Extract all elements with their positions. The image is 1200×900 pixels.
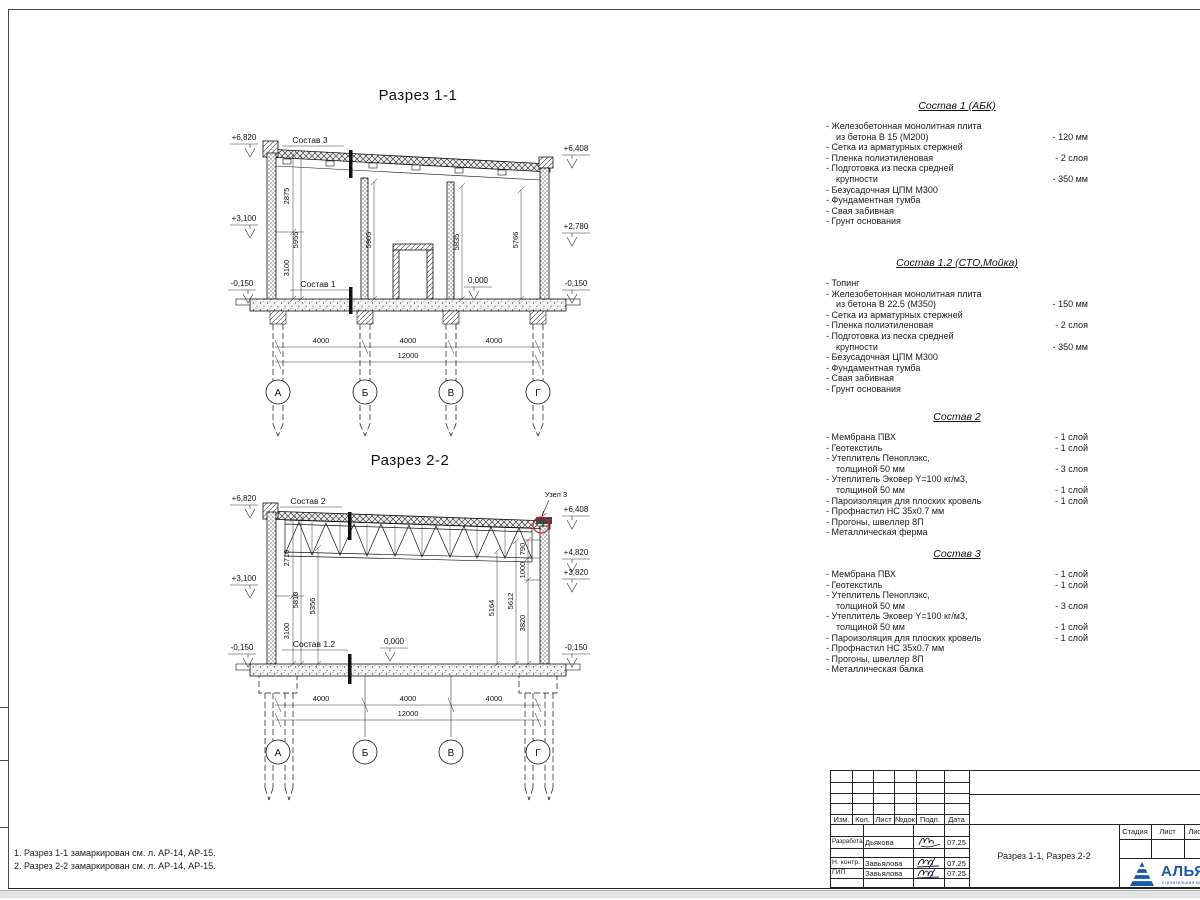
spec-item-value: - 120 мм <box>1047 132 1088 143</box>
spec-item-text: - Сетка из арматурных стержней <box>826 310 963 321</box>
svg-text:0,000: 0,000 <box>468 276 489 285</box>
spec-item-text: - Утеплитель Пеноплэкс, <box>826 453 930 464</box>
spec-item-text: - Пленка полиэтиленовая <box>826 320 933 331</box>
svg-text:+6,820: +6,820 <box>232 133 257 142</box>
spec-block-sostav-3: Состав 3 - Мембрана ПВХ - 1 слой - Геоте… <box>826 548 1088 675</box>
wall-left <box>267 512 276 664</box>
spec-item-value: - 1 слой <box>1049 622 1088 633</box>
spec-item-text: - Утеплитель Эковер Y=100 кг/м3, <box>826 474 967 485</box>
spec-item-text: из бетона В 22.5 (М350) <box>826 299 936 310</box>
tb-stage-col: Стадия <box>1119 827 1151 836</box>
roof-slab <box>266 511 550 529</box>
spec-item-value: - 350 мм <box>1047 342 1088 353</box>
spec-row: - Пленка полиэтиленовая - 2 слоя <box>826 320 1088 331</box>
spec-item-text: - Подготовка из песка средней <box>826 163 954 174</box>
pile-cap <box>270 311 546 324</box>
company-name: АЛЬЯНС <box>1161 863 1200 880</box>
spec-item-value <box>1082 185 1088 196</box>
dimension-label: 3100 <box>282 623 291 640</box>
spec-row: из бетона В 22.5 (М350) - 150 мм <box>826 299 1088 310</box>
spec-row: крупности - 350 мм <box>826 174 1088 185</box>
tb-sheets-col: Листов <box>1184 827 1200 836</box>
spec-item-text: толщиной 50 мм <box>826 485 905 496</box>
spec-row: - Пароизоляция для плоских кровель - 1 с… <box>826 633 1088 644</box>
tb-col-list: Лист <box>873 815 894 824</box>
spec-item-value <box>1082 664 1088 675</box>
spec-item-value <box>1082 195 1088 206</box>
spec-item-text: - Геотекстиль <box>826 580 882 591</box>
spec-row: - Сетка из арматурных стержней <box>826 142 1088 153</box>
spec-item-value <box>1082 453 1088 464</box>
spec-block-sostav-1-2: Состав 1.2 (СТО,Мойка) - Топинг - Железо… <box>826 257 1088 395</box>
spec-item-value: - 1 слой <box>1049 443 1088 454</box>
spec-item-value <box>1082 363 1088 374</box>
elevation-mark: +3,820 <box>562 568 590 592</box>
spec-item-text: - Прогоны, швеллер 8П <box>826 654 924 665</box>
cut-mark <box>348 512 352 540</box>
dimension-label: 12000 <box>398 351 419 360</box>
spec-row: - Свая забивная <box>826 206 1088 217</box>
spec-item-text: - Металлическая ферма <box>826 527 928 538</box>
spec-block-sostav-2: Состав 2 - Мембрана ПВХ - 1 слой - Геоте… <box>826 411 1088 538</box>
title-block: Изм. Кол. Лист №док Подп. Дата Разработа… <box>830 770 1200 888</box>
svg-text:+3,100: +3,100 <box>232 574 257 583</box>
spec-item-value <box>1082 206 1088 217</box>
spec-item-value <box>1082 517 1088 528</box>
spec-item-text: - Пленка полиэтиленовая <box>826 153 933 164</box>
spec-item-text: - Топинг <box>826 278 859 289</box>
spec-row: - Металлическая балка <box>826 664 1088 675</box>
sheet-frame-bottom <box>8 888 1200 889</box>
spec-row: крупности - 350 мм <box>826 342 1088 353</box>
spec-row: - Утеплитель Эковер Y=100 кг/м3, <box>826 474 1088 485</box>
tb-col-kol: Кол. <box>852 815 873 824</box>
spec-item-text: - Фундаментная тумба <box>826 195 920 206</box>
spec-item-text: - Геотекстиль <box>826 443 882 454</box>
spec-row: из бетона В 15 (М200) - 120 мм <box>826 132 1088 143</box>
sections-drawing: 2875 5955 3100 5905 5835 5766 4000 4000 … <box>0 80 660 840</box>
dimension-label: 3820 <box>518 615 527 632</box>
spec-row: - Топинг <box>826 278 1088 289</box>
spec-item-text: - Сетка из арматурных стержней <box>826 142 963 153</box>
spec-item-value <box>1082 384 1088 395</box>
spec-item-value: - 1 слой <box>1049 432 1088 443</box>
spec-row: толщиной 50 мм - 3 слоя <box>826 464 1088 475</box>
svg-text:+2,780: +2,780 <box>564 222 589 231</box>
wall-left <box>267 153 276 299</box>
cut-mark <box>349 287 353 314</box>
spec-item-value <box>1082 654 1088 665</box>
spec-item-text: - Свая забивная <box>826 373 894 384</box>
door-frame <box>393 244 433 299</box>
spec-row: - Безусадочная ЦПМ М300 <box>826 352 1088 363</box>
axis-bubble: Б <box>362 748 369 759</box>
cut-mark <box>349 150 353 178</box>
section1-dim-labels: 2875 5955 3100 5905 5835 5766 4000 4000 … <box>282 188 520 360</box>
spec-row: - Железобетонная монолитная плита <box>826 121 1088 132</box>
spec-item-value <box>1082 121 1088 132</box>
spec-row: - Грунт основания <box>826 384 1088 395</box>
spec-row: - Утеплитель Пеноплэкс, <box>826 453 1088 464</box>
spec-item-value: - 150 мм <box>1047 299 1088 310</box>
elevation-mark: +6,408 <box>562 505 590 529</box>
spec-row: - Профнастил НС 35х0.7 мм <box>826 643 1088 654</box>
spec-item-value: - 3 слоя <box>1049 464 1088 475</box>
spec-item-text: - Мембрана ПВХ <box>826 432 896 443</box>
spec-title: Состав 3 <box>826 548 1088 560</box>
spec-row: - Утеплитель Эковер Y=100 кг/м3, <box>826 611 1088 622</box>
dimension-label: 1000 <box>518 562 527 579</box>
spec-item-value <box>1082 331 1088 342</box>
spec-row: - Профнастил НС 35х0.7 мм <box>826 506 1088 517</box>
spec-item-text: - Безусадочная ЦПМ М300 <box>826 352 938 363</box>
sheet-edge-shadow <box>0 890 1200 898</box>
wall-right <box>540 168 549 299</box>
spec-row: - Безусадочная ЦПМ М300 <box>826 185 1088 196</box>
section2-dim-labels: 2710 5810 5356 3100 5164 5612 3820 1000 … <box>282 543 527 718</box>
spec-item-value <box>1082 527 1088 538</box>
dimension-label: 5955 <box>291 232 300 249</box>
spec-item-text: - Пароизоляция для плоских кровель <box>826 496 981 507</box>
elevation-mark: +6,820 <box>230 133 258 157</box>
wall-right <box>540 526 549 664</box>
spec-item-value: - 2 слоя <box>1049 153 1088 164</box>
spec-row: - Подготовка из песка средней <box>826 163 1088 174</box>
spec-item-text: - Грунт основания <box>826 384 901 395</box>
tb-date: 07.25 <box>944 869 969 878</box>
spec-rows: - Топинг - Железобетонная монолитная пли… <box>826 278 1088 395</box>
floor-ledge <box>566 299 580 305</box>
elevation-mark: -0,150 <box>562 643 590 667</box>
spec-item-text: - Железобетонная монолитная плита <box>826 289 982 300</box>
dimension-label: 4000 <box>313 336 330 345</box>
spec-row: - Мембрана ПВХ - 1 слой <box>826 432 1088 443</box>
svg-text:+6,820: +6,820 <box>232 494 257 503</box>
svg-text:+6,408: +6,408 <box>564 144 589 153</box>
elevation-mark: +3,100 <box>230 214 258 238</box>
cut-mark <box>348 654 352 684</box>
spec-row: - Прогоны, швеллер 8П <box>826 517 1088 528</box>
composition-label: Состав 2 <box>290 496 326 506</box>
spec-row: - Пленка полиэтиленовая - 2 слоя <box>826 153 1088 164</box>
dimension-label: 4000 <box>400 694 417 703</box>
spec-rows: - Железобетонная монолитная плита из бет… <box>826 121 1088 227</box>
spec-item-value: - 1 слой <box>1049 569 1088 580</box>
spec-row: - Подготовка из песка средней <box>826 331 1088 342</box>
spec-row: - Утеплитель Пеноплэкс, <box>826 590 1088 601</box>
dimension-label: 5164 <box>487 600 496 617</box>
tb-doc-title: Разрез 1-1, Разрез 2-2 <box>971 851 1117 861</box>
tb-name: Дьякова <box>865 838 912 847</box>
dimension-label: 2875 <box>282 188 291 205</box>
spec-item-value <box>1082 373 1088 384</box>
spec-item-value <box>1082 474 1088 485</box>
tb-col-izm: Изм. <box>831 815 852 824</box>
spec-rows: - Мембрана ПВХ - 1 слой - Геотекстиль - … <box>826 432 1088 538</box>
dimension-label: 5766 <box>511 232 520 249</box>
spec-row: толщиной 50 мм - 1 слой <box>826 622 1088 633</box>
spec-item-text: - Утеплитель Пеноплэкс, <box>826 590 930 601</box>
svg-text:-0,150: -0,150 <box>565 279 588 288</box>
elevation-mark: +6,408 <box>562 144 590 168</box>
floor-ledge <box>236 299 250 305</box>
spec-item-text: - Подготовка из песка средней <box>826 331 954 342</box>
signature-icon <box>915 867 943 880</box>
spec-item-value <box>1082 352 1088 363</box>
elevation-mark: -0,150 <box>228 643 256 667</box>
section1-axes: А Б В Г <box>266 380 550 404</box>
spec-item-text: - Пароизоляция для плоских кровель <box>826 633 981 644</box>
spec-item-text: - Грунт основания <box>826 216 901 227</box>
axis-bubble: Г <box>535 748 541 759</box>
svg-text:+4,820: +4,820 <box>564 548 589 557</box>
signature-icon <box>915 833 943 848</box>
tb-sheet-col: Лист <box>1151 827 1184 836</box>
spec-item-text: крупности <box>826 342 878 353</box>
spec-row: - Металлическая ферма <box>826 527 1088 538</box>
dimension-label: 3100 <box>282 260 291 277</box>
note-line: 1. Разрез 1-1 замаркирован см. л. АР-14,… <box>14 847 216 860</box>
spec-item-text: - Мембрана ПВХ <box>826 569 896 580</box>
spec-item-value <box>1082 278 1088 289</box>
svg-text:+6,408: +6,408 <box>564 505 589 514</box>
spec-item-text: толщиной 50 мм <box>826 622 905 633</box>
spec-row: - Геотекстиль - 1 слой <box>826 443 1088 454</box>
dimension-label: 4000 <box>313 694 330 703</box>
spec-item-value <box>1082 643 1088 654</box>
spec-item-value <box>1082 310 1088 321</box>
dimension-label: 2710 <box>282 550 291 567</box>
elevation-mark: +6,820 <box>230 494 258 518</box>
spec-item-text: толщиной 50 мм <box>826 464 905 475</box>
spec-title: Состав 1.2 (СТО,Мойка) <box>826 257 1088 269</box>
dimension-label: 5612 <box>506 593 515 610</box>
spec-row: - Сетка из арматурных стержней <box>826 310 1088 321</box>
tb-date: 07.25 <box>944 838 969 847</box>
axis-bubble: А <box>275 388 282 399</box>
spec-item-value <box>1082 163 1088 174</box>
spec-item-text: - Свая забивная <box>826 206 894 217</box>
note-line: 2. Разрез 2-2 замаркирован см. л. АР-14,… <box>14 860 216 873</box>
spec-item-text: - Утеплитель Эковер Y=100 кг/м3, <box>826 611 967 622</box>
spec-item-value: - 1 слой <box>1049 633 1088 644</box>
tb-col-data: Дата <box>944 815 969 824</box>
roof-slab <box>266 149 550 172</box>
axis-extension <box>365 676 451 737</box>
svg-text:-0,150: -0,150 <box>231 279 254 288</box>
composition-label: Состав 1 <box>300 279 336 289</box>
spec-item-value: - 1 слой <box>1049 580 1088 591</box>
spec-item-text: - Фундаментная тумба <box>826 363 920 374</box>
roof-edge <box>539 157 553 168</box>
dimension-label: 5356 <box>308 598 317 615</box>
spec-item-value <box>1082 216 1088 227</box>
dimension-label: 4000 <box>486 336 503 345</box>
elevation-mark: 0,000 <box>380 637 408 661</box>
elevation-mark: 0,000 <box>464 276 492 300</box>
spec-rows: - Мембрана ПВХ - 1 слой - Геотекстиль - … <box>826 569 1088 675</box>
spec-item-text: - Металлическая балка <box>826 664 923 675</box>
tb-col-podp: Подп. <box>916 815 944 824</box>
floor-slab <box>250 299 566 311</box>
svg-text:-0,150: -0,150 <box>565 643 588 652</box>
spec-item-value: - 3 слоя <box>1049 601 1088 612</box>
dimension-label: 5810 <box>291 592 300 609</box>
composition-label: Состав 1.2 <box>293 639 336 649</box>
company-subtitle: строительная компания <box>1162 880 1200 885</box>
spec-item-text: - Профнастил НС 35х0.7 мм <box>826 643 944 654</box>
spec-title: Состав 2 <box>826 411 1088 423</box>
spec-item-text: крупности <box>826 174 878 185</box>
spec-row: - Железобетонная монолитная плита <box>826 289 1088 300</box>
floor-slab <box>250 664 566 676</box>
spec-title: Состав 1 (АБК) <box>826 100 1088 112</box>
spec-item-value <box>1082 590 1088 601</box>
tb-name: Завьялова <box>865 869 912 878</box>
dimension-label: 5905 <box>364 232 373 249</box>
spec-item-value <box>1082 611 1088 622</box>
spec-row: - Геотекстиль - 1 слой <box>826 580 1088 591</box>
spec-row: толщиной 50 мм - 1 слой <box>826 485 1088 496</box>
tb-role: Н. контр. <box>832 859 863 866</box>
spec-item-value <box>1082 142 1088 153</box>
tb-date: 07.25 <box>944 859 969 868</box>
dimension-label: 5835 <box>452 234 461 251</box>
spec-item-value: - 1 слой <box>1049 496 1088 507</box>
svg-text:0,000: 0,000 <box>384 637 405 646</box>
spec-row: - Пароизоляция для плоских кровель - 1 с… <box>826 496 1088 507</box>
detail-label: Узел 3 <box>545 490 567 499</box>
spec-row: - Фундаментная тумба <box>826 363 1088 374</box>
spec-item-text: - Железобетонная монолитная плита <box>826 121 982 132</box>
spec-item-value: - 2 слоя <box>1049 320 1088 331</box>
spec-item-text: - Прогоны, швеллер 8П <box>826 517 924 528</box>
elevation-mark: +3,100 <box>230 574 258 598</box>
svg-text:+3,100: +3,100 <box>232 214 257 223</box>
spec-row: - Свая забивная <box>826 373 1088 384</box>
spec-item-value <box>1082 506 1088 517</box>
dimension-label: 4000 <box>400 336 417 345</box>
axis-bubble: Б <box>362 388 369 399</box>
company-logo-icon <box>1129 861 1155 887</box>
spec-row: - Грунт основания <box>826 216 1088 227</box>
spec-row: - Мембрана ПВХ - 1 слой <box>826 569 1088 580</box>
spec-item-value <box>1082 289 1088 300</box>
svg-text:-0,150: -0,150 <box>231 643 254 652</box>
tb-name: Завьялова <box>865 859 912 868</box>
tb-col-ndok: №док <box>894 815 916 824</box>
spec-item-text: - Безусадочная ЦПМ М300 <box>826 185 938 196</box>
svg-text:+3,820: +3,820 <box>564 568 589 577</box>
dimension-label: 12000 <box>398 709 419 718</box>
dimension-label: 790 <box>518 543 527 556</box>
composition-label: Состав 3 <box>292 135 328 145</box>
section2-axes: А Б В Г <box>266 740 550 764</box>
sheet-frame-top <box>8 9 1200 10</box>
axis-bubble: А <box>275 748 282 759</box>
spec-row: - Фундаментная тумба <box>826 195 1088 206</box>
spec-item-text: из бетона В 15 (М200) <box>826 132 928 143</box>
spec-item-value: - 350 мм <box>1047 174 1088 185</box>
axis-bubble: В <box>448 388 455 399</box>
tb-role: ГИП <box>832 869 863 876</box>
axis-bubble: Г <box>535 388 541 399</box>
dimension-label: 4000 <box>486 694 503 703</box>
axis-bubble: В <box>448 748 455 759</box>
spec-row: толщиной 50 мм - 3 слоя <box>826 601 1088 612</box>
spec-row: - Прогоны, швеллер 8П <box>826 654 1088 665</box>
sheet-notes: 1. Разрез 1-1 замаркирован см. л. АР-14,… <box>14 847 216 873</box>
tb-role: Разработал <box>832 838 863 845</box>
spec-item-text: толщиной 50 мм <box>826 601 905 612</box>
spec-item-text: - Профнастил НС 35х0.7 мм <box>826 506 944 517</box>
elevation-mark: +2,780 <box>562 222 590 246</box>
spec-block-sostav-1: Состав 1 (АБК) - Железобетонная монолитн… <box>826 100 1088 227</box>
spec-item-value: - 1 слой <box>1049 485 1088 496</box>
